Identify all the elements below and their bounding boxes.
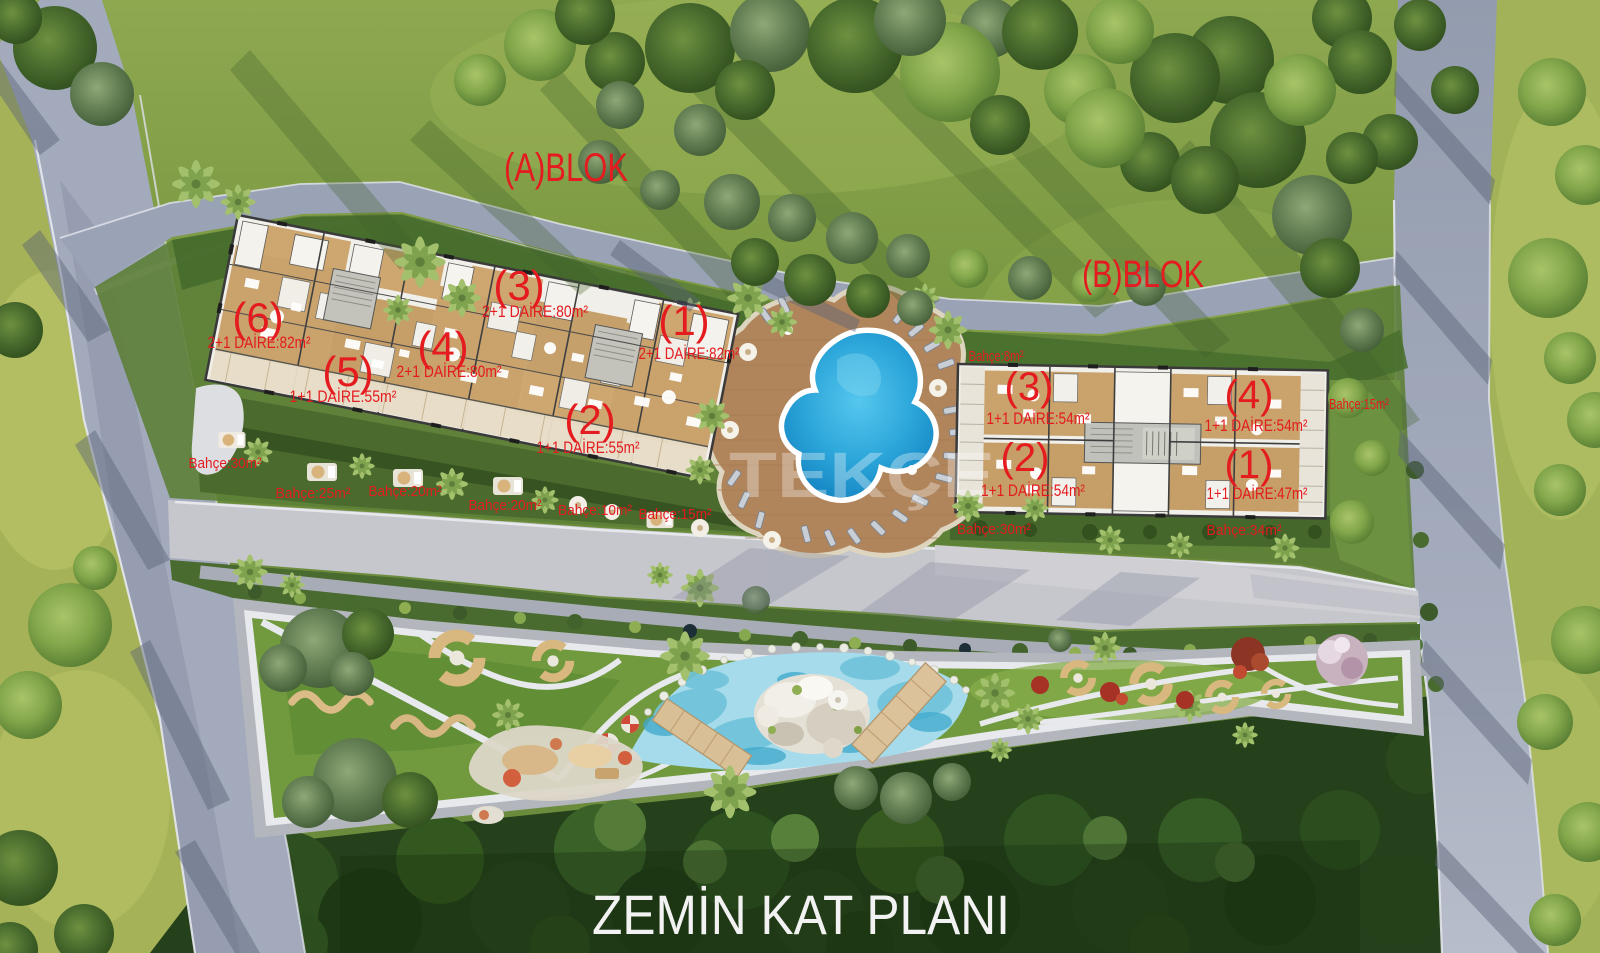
svg-text:1+1 DAİRE:54m²: 1+1 DAİRE:54m²	[981, 481, 1085, 500]
svg-text:(3): (3)	[1005, 365, 1054, 409]
svg-text:2+1 DAİRE:82m²: 2+1 DAİRE:82m²	[639, 344, 740, 363]
svg-text:(B)BLOK: (B)BLOK	[1082, 254, 1204, 296]
svg-text:Bahçe:15m²: Bahçe:15m²	[1329, 396, 1389, 413]
svg-text:Bahçe:20m²: Bahçe:20m²	[469, 497, 542, 514]
svg-text:1+1 DAİRE:55m²: 1+1 DAİRE:55m²	[290, 387, 397, 406]
svg-text:Bahçe:8m²: Bahçe:8m²	[969, 348, 1024, 365]
svg-text:2+1 DAİRE:80m²: 2+1 DAİRE:80m²	[482, 302, 588, 321]
svg-text:1+1 DAİRE:54m²: 1+1 DAİRE:54m²	[987, 409, 1090, 428]
svg-text:Bahçe:30m²: Bahçe:30m²	[957, 521, 1031, 538]
svg-text:TEKÇE: TEKÇE	[729, 439, 995, 511]
svg-text:ZEMİN KAT PLANI: ZEMİN KAT PLANI	[592, 883, 1010, 946]
svg-text:2+1 DAİRE:80m²: 2+1 DAİRE:80m²	[397, 362, 502, 381]
svg-text:Bahçe:20m²: Bahçe:20m²	[369, 483, 442, 500]
svg-text:Bahçe:10m²: Bahçe:10m²	[558, 502, 632, 519]
svg-text:(4): (4)	[1225, 373, 1274, 417]
svg-text:1+1 DAİRE:55m²: 1+1 DAİRE:55m²	[537, 438, 640, 457]
svg-text:Bahçe:30m²: Bahçe:30m²	[189, 455, 262, 472]
svg-text:1+1 DAİRE:47m²: 1+1 DAİRE:47m²	[1207, 484, 1308, 503]
svg-text:(A)BLOK: (A)BLOK	[504, 146, 628, 190]
svg-text:Bahçe:34m²: Bahçe:34m²	[1207, 522, 1282, 539]
svg-text:Bahçe:25m²: Bahçe:25m²	[276, 485, 351, 502]
svg-text:1+1 DAİRE:54m²: 1+1 DAİRE:54m²	[1205, 416, 1308, 435]
svg-text:(1): (1)	[658, 297, 709, 344]
svg-text:2+1 DAİRE:82m²: 2+1 DAİRE:82m²	[208, 333, 311, 352]
svg-text:(2): (2)	[1001, 436, 1050, 480]
svg-text:Bahçe:15m²: Bahçe:15m²	[639, 506, 712, 523]
svg-text:(2): (2)	[564, 396, 615, 443]
svg-text:(1): (1)	[1225, 443, 1274, 487]
